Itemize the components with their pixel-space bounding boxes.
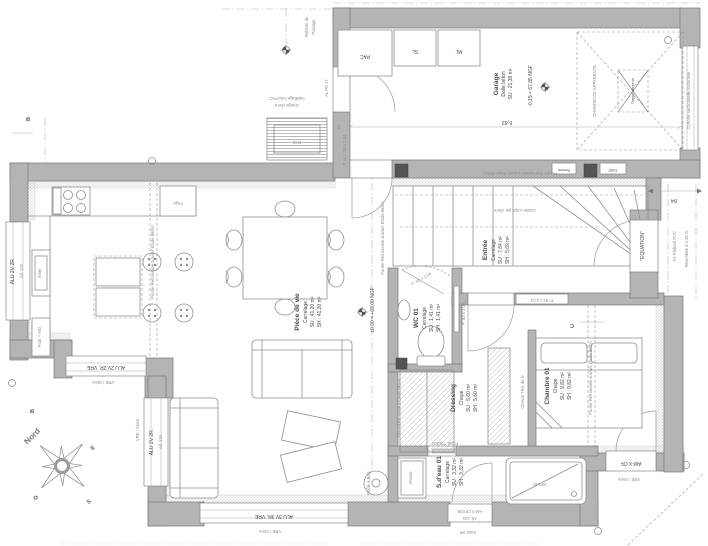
porch-dim: 84 bbox=[671, 197, 677, 203]
entry-label: Entrée Carrelage SU : 7,84 m² SH : 5,69 … bbox=[482, 236, 511, 264]
coffee-table bbox=[280, 442, 341, 483]
window-shutter-label: VRE / Store bbox=[91, 380, 114, 385]
section-c: C bbox=[570, 322, 574, 328]
ceiling-note: Fx Plafond PVC bbox=[672, 231, 677, 261]
room-name: Chambre 01 bbox=[544, 367, 551, 405]
beam-note: Poutre Retroussée suivant Étude Béton bbox=[483, 171, 557, 176]
dryer-label: SL bbox=[412, 48, 418, 54]
room-floor: Dalle béton bbox=[501, 71, 507, 97]
kitchen-island bbox=[94, 256, 142, 318]
window-living-south: ALU 3V 3R. VRE VRE / Store bbox=[200, 503, 348, 534]
pieuvre-label: Pieuvre bbox=[558, 168, 570, 172]
compass-south-label: S bbox=[86, 499, 93, 506]
window-kitchen-south: ALU 2V 2R. VRE VRE / Store bbox=[66, 356, 146, 385]
window-shutter-label: VRE / Store bbox=[135, 418, 140, 441]
sink: Évier bbox=[32, 250, 50, 296]
compass-west-label: O bbox=[33, 494, 41, 502]
pillow bbox=[591, 343, 637, 363]
room-name: S.d'eau 01 bbox=[436, 456, 443, 488]
chair bbox=[328, 267, 344, 287]
bedroom-door-label: P: 83 x 2,04 bbox=[530, 298, 553, 303]
dining-table bbox=[243, 217, 327, 299]
room-area-sh: SH : 1,41 m² bbox=[436, 304, 442, 332]
hob bbox=[52, 187, 90, 215]
room-area-sh: SH : 5,69 m² bbox=[505, 236, 511, 264]
shower-size-label: 90*140 bbox=[533, 482, 547, 487]
exterior-pac: PAC habillage bois PAC charge client Rob… bbox=[267, 16, 327, 160]
porch-notes: "EQUATION" Fx Plafond PVC Retombée à 2,3… bbox=[630, 220, 689, 272]
level-symbol bbox=[540, 82, 551, 93]
room-area-sh: SH : 9,82 m² bbox=[567, 372, 573, 400]
room-name: Entrée bbox=[482, 240, 489, 261]
room-area: SU : 21,38 m² bbox=[508, 68, 514, 99]
iso-door-label: P. Iso.: 83 x 2,04 bbox=[342, 134, 347, 166]
door-wc: P: 83 x 2,04 bbox=[402, 266, 450, 294]
equation-label: "EQUATION" bbox=[640, 231, 646, 261]
window-shutter-label: VRE / Store bbox=[258, 529, 281, 534]
chair bbox=[226, 267, 242, 287]
room-area-sh: SH : 5,60 m² bbox=[473, 384, 479, 412]
window-shutter-label: VRE / Store bbox=[617, 477, 640, 482]
room-floor: Chape bbox=[459, 390, 465, 405]
chair bbox=[275, 299, 295, 315]
section-b-bottom: B bbox=[30, 409, 36, 413]
room-area-su: SU : 41,20 m² bbox=[310, 296, 316, 327]
awaiting-label: Attente bbox=[408, 471, 413, 485]
stair-railing-note: Garde-corps par client bbox=[493, 208, 535, 213]
kitchen: Frigo Évier Four + MO bbox=[28, 186, 196, 356]
dressing-label: Dressing Chape SU : 5,60 m² SH : 5,60 m² bbox=[450, 384, 479, 412]
bar-stool bbox=[175, 304, 193, 322]
wall-dim-22: 22 bbox=[336, 124, 341, 129]
window-label: ALU 2V 2R. bbox=[10, 258, 16, 284]
pillow bbox=[541, 343, 587, 363]
room-name: WC 01 bbox=[413, 308, 420, 328]
headboard-partition-note: Cloison Tête de lit bbox=[520, 374, 525, 408]
sofa-vertical bbox=[170, 398, 218, 498]
floor-plan-page: ALU 2V 2R. All. 120 ALU 2V 2R. All. 120 … bbox=[0, 0, 708, 546]
fridge-label: Frigo bbox=[173, 201, 183, 206]
wall-dim-22: 22 bbox=[686, 124, 691, 129]
room-floor: Carrelage bbox=[303, 301, 309, 323]
window-sill-label: All. 120 bbox=[19, 263, 24, 278]
toilet-tank bbox=[417, 356, 445, 366]
bar-stool bbox=[143, 304, 161, 322]
bedroom-furniture: Cloison Tête de lit bbox=[520, 338, 642, 428]
tap-note-line2: Puisage bbox=[311, 19, 316, 35]
window-living-west: ALU 2V 2R. All. 120 VRE / Store bbox=[135, 398, 168, 486]
room-name: Pièce de vie bbox=[294, 293, 301, 331]
garage-room-label: Garage Dalle béton SU : 21,38 m² bbox=[493, 68, 514, 99]
room-area-sh: SH : 41,20 m² bbox=[317, 296, 323, 327]
wc-door-label: P: 83 x 2,04 bbox=[410, 271, 432, 287]
window-sill-label: All. 120 bbox=[462, 516, 477, 521]
section-b-top: B bbox=[26, 117, 32, 121]
oven-label: Four + MO bbox=[37, 326, 42, 347]
room-floor: Carrelage bbox=[445, 461, 451, 483]
room-area-su: SU : 9,82 m² bbox=[560, 372, 566, 400]
room-name: Dressing bbox=[450, 384, 457, 412]
room-floor: Chape bbox=[553, 378, 559, 393]
sofa-horizontal bbox=[252, 340, 352, 398]
pac-cladding-note-1: habillage bois PAC bbox=[269, 96, 304, 101]
shower: 90*140 bbox=[506, 458, 586, 504]
beam-note: Poutre Retroussée suivant Étude Béton bbox=[588, 341, 593, 415]
ground-floor-level: ±0,00 = +68,00 NGF bbox=[370, 287, 376, 333]
pac-exterior-label: PAC bbox=[293, 140, 301, 145]
room-floor: Carrelage bbox=[491, 239, 497, 261]
door-label-vertical: P: 83 x 2,04 bbox=[461, 302, 466, 325]
tap-symbol bbox=[281, 45, 292, 56]
garage-width-dim: 6,82 bbox=[502, 119, 513, 125]
window-label: ALU 2V 2R. VRE bbox=[86, 364, 125, 370]
pac-cladding-note-2: charge client bbox=[274, 103, 299, 108]
garage-level: -0,15 = 67,85 NGF bbox=[528, 65, 534, 107]
garage-sectional-door: Porte sectionnelle motorisée bbox=[682, 46, 698, 150]
chair bbox=[328, 230, 344, 250]
room-area-su: SU : 3,32 m² bbox=[452, 458, 458, 486]
room-area-sh: SH : 3,32 m² bbox=[459, 458, 465, 486]
pac-unit-label: PAC bbox=[360, 53, 370, 59]
service-door-label: AL PS 1T bbox=[324, 79, 329, 97]
wardrobe bbox=[488, 348, 510, 444]
stove-label: Poêle à Bois bbox=[366, 471, 371, 495]
window-label: AM-X OF/OB bbox=[457, 509, 482, 514]
sink-label: Évier bbox=[37, 268, 42, 278]
tap-note-line1: Robinet de bbox=[304, 16, 309, 37]
bar-stool bbox=[175, 253, 193, 271]
washer-label: ML bbox=[455, 48, 462, 54]
wood-stove: Poêle à Bois bbox=[364, 471, 388, 495]
level-symbol bbox=[357, 307, 368, 318]
compass-east-label: E bbox=[90, 445, 97, 452]
dropped-ceiling-note: Retombée à 2,35 m bbox=[684, 230, 689, 267]
window-kitchen-west: ALU 2V 2R. All. 120 bbox=[6, 222, 30, 320]
hand-basin bbox=[398, 300, 410, 320]
wc-label: WC 01 Carrelage SU : 1,41 m² SH : 1,41 m… bbox=[413, 304, 442, 332]
room-name: Garage bbox=[493, 72, 500, 95]
room-area-su: SU : 1,41 m² bbox=[429, 304, 435, 332]
charpente-note: CHARPENTE APPARENTE bbox=[592, 65, 597, 117]
oven-column: Four + MO bbox=[32, 318, 50, 356]
beam-note: Poutre Retroussée suivant Étude Béton bbox=[380, 201, 385, 275]
window-label: ALU 3V 3R. VRE bbox=[254, 513, 293, 519]
fridge: Frigo bbox=[160, 186, 196, 216]
tgbt-label: TGBT bbox=[607, 168, 617, 172]
dropped-beam-note: Retombée suivant Étude Béton bbox=[396, 378, 401, 437]
chair bbox=[226, 230, 242, 250]
living-furniture: Poêle à Bois bbox=[170, 340, 388, 498]
window-label: AM-X OF bbox=[621, 460, 642, 466]
vanity-awaiting: Attente bbox=[398, 458, 426, 498]
compass-north-label: Nord bbox=[22, 426, 42, 446]
trappe-note: Trappe accès vs bbox=[631, 78, 635, 104]
staircase: Garde-corps par client bbox=[393, 186, 648, 266]
room-area-su: SU : 7,84 m² bbox=[498, 236, 504, 264]
room-area-su: SU : 5,60 m² bbox=[466, 384, 472, 412]
chair bbox=[275, 201, 295, 217]
room-floor: Carrelage bbox=[422, 307, 428, 329]
beam-note: Poutre Retroussée suivant Étude Béton bbox=[150, 225, 155, 299]
window-label: ALU 2V 2R. bbox=[149, 429, 155, 455]
exposed-frame: CHARPENTE APPARENTE Trappe accès vs bbox=[577, 32, 683, 150]
compass-rose: Nord E S O bbox=[20, 424, 105, 509]
dining-set bbox=[226, 201, 344, 315]
floor-plan-drawing: ALU 2V 2R. All. 120 ALU 2V 2R. All. 120 … bbox=[0, 0, 708, 546]
window-shutter-label: Sans VR bbox=[460, 530, 477, 535]
window-sill-label: All. 120 bbox=[158, 434, 163, 449]
bathroom-label: S.d'eau 01 Carrelage SU : 3,32 m² SH : 3… bbox=[436, 456, 465, 488]
sectional-door-label: Porte sectionnelle motorisée bbox=[686, 71, 691, 125]
tap-note: Robinet de Puisage bbox=[281, 16, 317, 55]
